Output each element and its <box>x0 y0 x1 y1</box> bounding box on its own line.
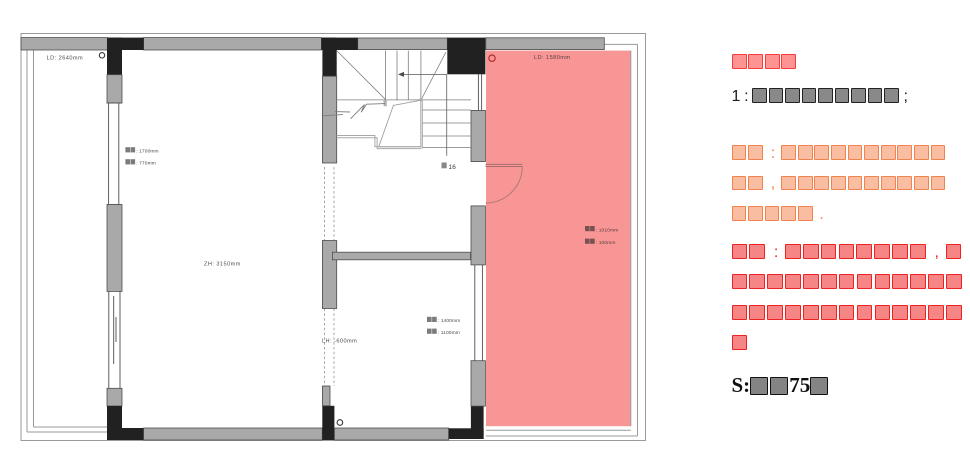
svg-text:: 770mm: : 770mm <box>136 161 156 167</box>
svg-text:LH: -600mm: LH: -600mm <box>322 339 357 345</box>
svg-text:: 1010mm: : 1010mm <box>596 227 619 233</box>
svg-text:: 100mm: : 100mm <box>596 240 616 246</box>
svg-text:: 1400mm: : 1400mm <box>438 318 461 324</box>
svg-text:LD: 2640mm: LD: 2640mm <box>47 56 84 62</box>
svg-text:LD: 1580mm: LD: 1580mm <box>534 55 571 61</box>
svg-text:: 1700mm: : 1700mm <box>136 149 159 155</box>
svg-text:: 1100mm: : 1100mm <box>438 330 460 336</box>
svg-text:ZH: 3150mm: ZH: 3150mm <box>204 262 241 268</box>
svg-text:16: 16 <box>449 164 457 171</box>
